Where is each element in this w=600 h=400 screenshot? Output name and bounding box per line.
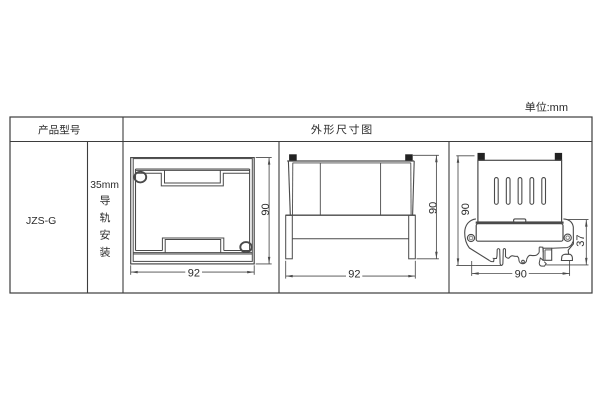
svg-text::mm: :mm <box>547 102 568 114</box>
svg-text:37: 37 <box>575 235 587 247</box>
svg-text:90: 90 <box>515 268 527 280</box>
svg-text:90: 90 <box>260 203 272 215</box>
svg-text:JZS-G: JZS-G <box>26 215 56 227</box>
svg-text:90: 90 <box>427 202 439 214</box>
svg-text:92: 92 <box>188 268 200 280</box>
svg-text:90: 90 <box>460 203 472 215</box>
svg-text:35mm: 35mm <box>90 180 119 191</box>
svg-text:92: 92 <box>348 268 360 280</box>
